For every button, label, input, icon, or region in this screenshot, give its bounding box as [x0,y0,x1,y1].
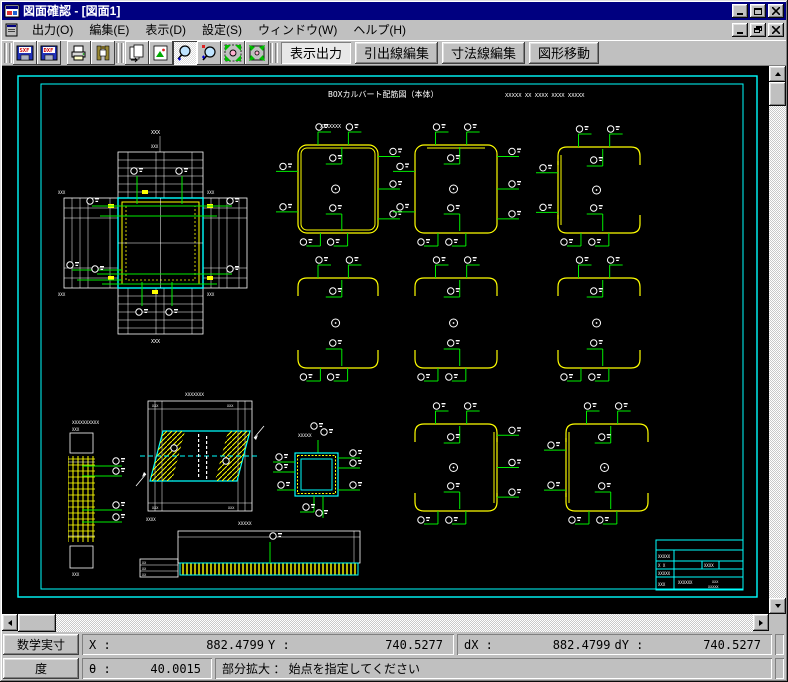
svg-text:XXX: XXX [58,292,66,297]
printer-icon [69,43,89,63]
svg-text:XXXXX: XXXXX [658,571,671,576]
arrow-down-icon [775,604,781,608]
menu-help[interactable]: ヘルプ(H) [345,19,414,41]
zoom-partial-button[interactable] [221,41,245,65]
svg-text:XXX: XXX [227,404,234,408]
arrow-right-icon [759,620,763,626]
vertical-scroll-thumb[interactable] [769,82,786,106]
titlebar: 図面確認 - [図面1] [2,2,786,20]
svg-text:XXXXXXXXXX: XXXXXXXXXX [72,420,99,426]
cad-drawing-canvas[interactable]: BOXカルバート配筋図（本体）XXXXX XX XXXX XXXX XXXXXX… [2,66,769,614]
x-label: X : [89,638,111,652]
drawing-client-area: BOXカルバート配筋図（本体）XXXXX XX XXXX XXXX XXXXXX… [2,66,786,614]
toolbar-separator [270,43,273,63]
toolbar-separator [275,43,278,63]
document-icon[interactable] [4,23,20,37]
menu-edit[interactable]: 編集(E) [81,19,137,41]
svg-text:XXX: XXX [72,572,80,577]
minimize-button[interactable] [732,4,748,18]
svg-text:XXXXX: XXXXX [298,433,312,439]
zoom-fit-icon [247,43,267,63]
zoom-in-icon [175,43,195,63]
delta-coordinate-panel: dX : 882.4799 dY : 740.5277 [457,634,772,655]
arrow-left-icon [8,620,12,626]
toolbar-separator [4,43,7,63]
prompt-message: 部分拡大 ： 始点を指定してください [222,660,420,677]
display-output-button[interactable]: 表示出力 [281,42,351,64]
status-spacer-panel [775,658,784,679]
menubar: 出力(O) 編集(E) 表示(D) 設定(S) ウィンドウ(W) ヘルプ(H) [2,20,786,40]
close-button[interactable] [768,4,784,18]
svg-text:XXX: XXX [152,506,159,510]
angle-unit-button[interactable]: 度 [3,658,79,679]
horizontal-scrollbar[interactable] [2,614,769,632]
status-spacer-panel [775,634,784,655]
dy-value: 740.5277 [643,638,765,652]
toolbar-separator [121,43,124,63]
leader-line-edit-button[interactable]: 引出線編集 [355,42,438,64]
svg-text:XXXX: XXXX [146,517,156,522]
horizontal-scrollbar-row [2,614,786,632]
svg-text:XX: XX [142,567,147,571]
svg-text:XXX: XXX [151,339,160,345]
toolbar-separator [9,43,12,63]
save-sxf-button[interactable]: SXF [13,41,37,65]
scroll-up-button[interactable] [769,66,786,82]
shape-move-button[interactable]: 図形移動 [529,42,599,64]
y-label: Y : [268,638,290,652]
vertical-scrollbar[interactable] [769,66,786,614]
toolbar-separator [116,43,119,63]
mdi-restore-button[interactable] [750,23,766,37]
svg-text:BOXカルバート配筋図（本体）: BOXカルバート配筋図（本体） [328,89,438,99]
zoom-in-button[interactable] [173,41,197,65]
vertical-scroll-track[interactable] [769,106,786,598]
svg-text:XXXXX: XXXXX [658,554,671,559]
menu-output[interactable]: 出力(O) [24,19,81,41]
angle-panel: θ : 40.0015 [82,658,212,679]
restore-icon [754,26,763,34]
dx-label: dX : [464,638,493,652]
window-title: 図面確認 - [図面1] [23,4,729,18]
horizontal-scroll-thumb[interactable] [18,614,56,632]
close-icon [772,26,780,34]
x-value: 882.4799 [111,638,268,652]
svg-text:XXX: XXX [712,580,719,584]
svg-text:XXX: XXX [152,404,159,408]
scroll-down-button[interactable] [769,598,786,614]
arrow-up-icon [775,72,781,76]
unit-mode-button[interactable]: 数学実寸 [3,634,79,655]
scroll-right-button[interactable] [753,614,769,631]
theta-value: 40.0015 [111,662,205,676]
svg-text:XXXXX XX XXXX XXXX XXX: XXXXX XX XXXX XXXX XXXXX [505,93,585,99]
y-value: 740.5277 [290,638,447,652]
minimize-icon [737,13,743,15]
zoom-dynamic-button[interactable] [197,41,221,65]
menu-settings[interactable]: 設定(S) [194,19,250,41]
svg-text:XXX: XXX [658,582,666,587]
svg-text:XXXXXXX: XXXXXXX [185,392,204,398]
app-window: 図面確認 - [図面1] 出力(O) 編集(E) 表示(D) 設定(S) ウィン… [0,0,788,682]
minimize-icon [737,32,743,34]
svg-text:XX: XX [142,573,147,577]
status-bar-row2: 度 θ : 40.0015 部分拡大 ： 始点を指定してください [2,656,786,680]
svg-text:XXX: XXX [72,427,80,432]
svg-text:DXF: DXF [44,48,54,54]
dx-value: 882.4799 [493,638,615,652]
svg-text:XXX: XXX [151,130,160,136]
sxf-floppy-icon: SXF [15,43,35,63]
app-icon [4,4,20,18]
maximize-button[interactable] [750,4,766,18]
maximize-icon [754,8,762,15]
image-page-icon [151,43,171,63]
svg-text:XXXX: XXXX [704,563,714,568]
plotter-icon [93,43,113,63]
print-button[interactable] [67,41,91,65]
svg-text:XXXXXX: XXXXXX [678,580,693,585]
toolbar: SXF DXF [2,40,786,66]
svg-text:X X: X X [658,563,666,568]
zoom-fit-button[interactable] [245,41,269,65]
svg-text:XXX: XXX [151,144,159,149]
scroll-left-button[interactable] [2,614,18,631]
svg-text:XXXXX: XXXXX [238,521,252,527]
mdi-close-button[interactable] [768,23,784,37]
svg-text:SXF: SXF [20,48,30,54]
menu-window[interactable]: ウィンドウ(W) [250,19,345,41]
coordinate-panel: X : 882.4799 Y : 740.5277 [82,634,454,655]
svg-text:XXXXXXX: XXXXXXX [320,124,341,130]
svg-text:XX: XX [142,561,147,565]
zoom-dynamic-icon [199,43,219,63]
mdi-minimize-button[interactable] [732,23,748,37]
copy-drawing-button[interactable] [125,41,149,65]
svg-text:XXX: XXX [58,190,66,195]
dimension-line-edit-button[interactable]: 寸法線編集 [442,42,525,64]
save-dxf-button[interactable]: DXF [37,41,61,65]
horizontal-scroll-track[interactable] [56,614,753,632]
svg-text:XXXXX: XXXXX [708,585,719,589]
svg-text:XXX: XXX [207,292,215,297]
dxf-floppy-icon: DXF [39,43,59,63]
scrollbar-corner [769,614,786,632]
svg-text:XXX: XXX [207,190,215,195]
image-output-button[interactable] [149,41,173,65]
copy-pages-icon [127,43,147,63]
zoom-partial-icon [223,43,243,63]
svg-text:XXX: XXX [228,506,235,510]
theta-label: θ : [89,662,111,676]
plotter-output-button[interactable] [91,41,115,65]
dy-label: dY : [615,638,644,652]
prompt-message-panel: 部分拡大 ： 始点を指定してください [215,658,772,679]
status-bar-row1: 数学実寸 X : 882.4799 Y : 740.5277 dX : 882.… [2,632,786,656]
close-icon [772,7,780,15]
menu-view[interactable]: 表示(D) [137,19,194,41]
